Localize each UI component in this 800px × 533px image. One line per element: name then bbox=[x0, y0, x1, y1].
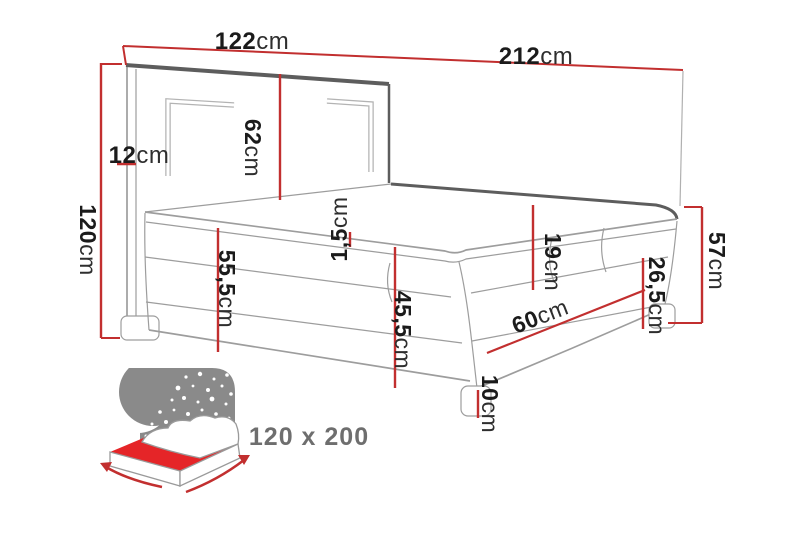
quilt-curve-2 bbox=[602, 228, 606, 272]
size-label: 120 x 200 bbox=[249, 423, 369, 451]
dim-topper-thickness-label: 1,5cm bbox=[326, 196, 352, 261]
bed-dimension-diagram-page: 122cm 212cm 120cm 12cm 62cm 55,5cm 1,5cm… bbox=[0, 0, 800, 533]
dimension-line-top bbox=[123, 46, 683, 70]
base-front-corner-edge bbox=[459, 262, 477, 388]
led-strip-left bbox=[168, 101, 234, 176]
dim-total-height-label: 120cm bbox=[75, 204, 101, 276]
dim-total-length-label: 212cm bbox=[499, 43, 574, 70]
dim-base-height-right-label: 26,5cm bbox=[644, 257, 670, 335]
dim-headboard-depth-label: 12cm bbox=[109, 142, 170, 169]
dim-headboard-width-label: 122cm bbox=[215, 28, 290, 55]
dim-leg-height-label: 10cm bbox=[477, 375, 503, 433]
led-strip-right bbox=[327, 101, 371, 172]
dim-side-height-right-label: 57cm bbox=[704, 232, 730, 290]
bed-size-icon bbox=[100, 358, 250, 492]
extension-line-right bbox=[680, 71, 683, 206]
dimension-tick-top-left bbox=[123, 46, 126, 65]
dimension-ticks-total-height bbox=[101, 64, 122, 338]
mattress-bottom-seam-right bbox=[471, 257, 668, 293]
headboard-foot bbox=[121, 316, 159, 340]
headboard-top-edge bbox=[126, 65, 389, 84]
bed-dimension-diagram: 122cm 212cm 120cm 12cm 62cm 55,5cm 1,5cm… bbox=[0, 0, 800, 533]
dim-mattress-thickness-label: 19cm bbox=[540, 233, 566, 291]
dim-front-height-label: 45,5cm bbox=[390, 291, 416, 369]
bed-size-badge: 120 x 200 bbox=[100, 358, 369, 492]
dim-side-height-left-label: 55,5cm bbox=[214, 250, 240, 328]
dim-headboard-panel-height-label: 62cm bbox=[240, 119, 266, 177]
base-left-edge bbox=[145, 213, 149, 330]
mattress-back-left-edge bbox=[145, 184, 391, 212]
